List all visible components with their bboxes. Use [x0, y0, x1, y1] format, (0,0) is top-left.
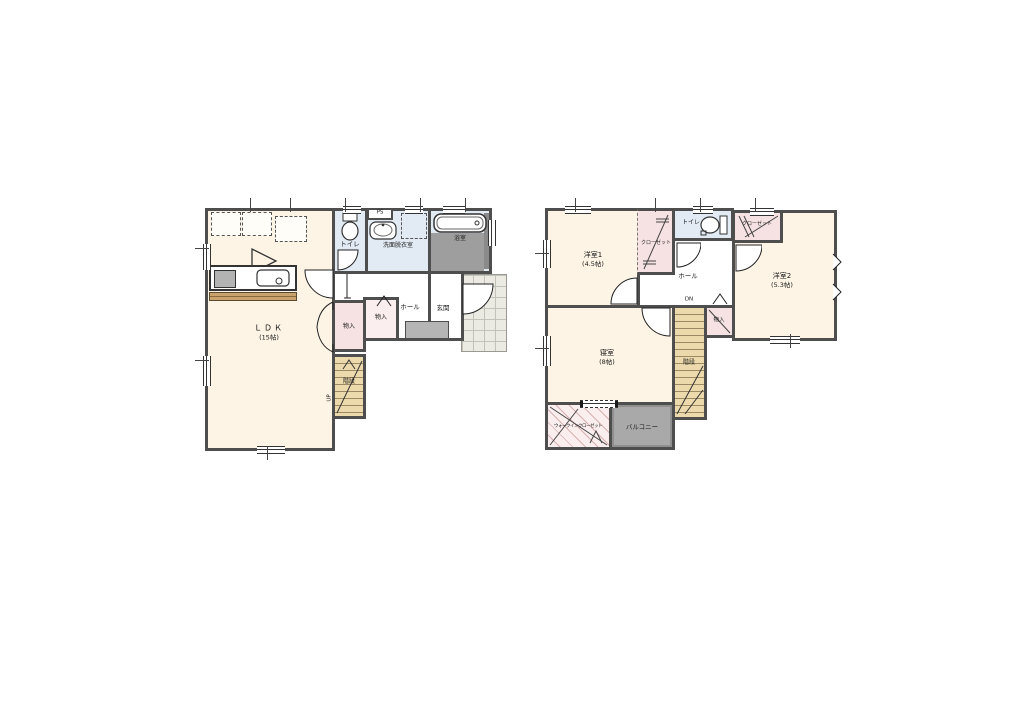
storage-2f-name: 物入 [713, 317, 724, 324]
room-label-western-2: 洋室2 (5.3帖) [771, 272, 793, 290]
stairs-up-label: UP [326, 394, 333, 401]
toilet-2f-name: トイレ [682, 219, 700, 227]
window-marker [488, 220, 496, 246]
kitchen-counter [209, 265, 297, 291]
ldk-size: (15帖) [254, 334, 284, 342]
bathroom-name: 浴室 [454, 235, 466, 243]
balcony-name: バルコニー [626, 423, 658, 431]
room-label-stairs-1f: 階段 [343, 378, 355, 386]
window-marker [257, 446, 285, 454]
washbasin-icon [369, 221, 397, 241]
stairs-dn-label: DN [685, 296, 693, 303]
room-label-hall-1f: ホール [400, 303, 420, 311]
dimension-tick [465, 198, 466, 212]
stairs-2f-name: 階段 [683, 359, 695, 367]
closet-2-name: クローゼット [742, 221, 772, 228]
ldk-name: ＬＤＫ [254, 324, 284, 334]
closet-1-name: クローゼット [641, 240, 671, 247]
bedroom-name: 寝室 [599, 349, 615, 358]
room-label-closet-1: クローゼット [641, 240, 671, 247]
ps-name: PS [377, 209, 384, 216]
stairs-1f [332, 354, 366, 419]
door-arc-entrance [461, 282, 495, 316]
western-2-name: 洋室2 [771, 272, 793, 281]
dimension-tick [655, 198, 656, 212]
casement-window-icon [832, 252, 842, 272]
counter-bar-wood [209, 292, 297, 301]
toilet-icon-2f [699, 213, 729, 237]
door-arc-western-2 [734, 243, 762, 273]
stairs-1f-name: 階段 [343, 378, 355, 386]
dimension-tick [267, 446, 268, 460]
sink-icon [256, 269, 290, 287]
dimension-tick [250, 198, 251, 212]
door-double-storage [315, 300, 335, 354]
hall-2f-name: ホール [678, 272, 698, 280]
window-marker [443, 206, 465, 214]
door-leaf-washroom [343, 272, 353, 300]
room-label-bedroom: 寝室 (8帖) [599, 349, 615, 367]
stairs-dn-text: DN [685, 296, 693, 303]
room-label-balcony: バルコニー [626, 423, 658, 431]
entrance-name: 玄関 [437, 304, 450, 312]
room-label-closet-2: クローゼット [742, 221, 772, 228]
room-label-bathroom: 浴室 [454, 235, 466, 243]
room-label-wic: ウォークインクローゼット [554, 424, 602, 430]
room-label-washroom: 洗面脱衣室 [383, 242, 413, 250]
stairs-up-text: UP [326, 394, 333, 401]
kitchen-cabinet-dashed [242, 212, 272, 236]
room-label-ldk: ＬＤＫ (15帖) [254, 324, 284, 343]
room-label-western-1: 洋室1 (4.5帖) [582, 251, 604, 269]
folding-door-icon [375, 294, 393, 308]
window-marker [565, 206, 591, 214]
washroom-name: 洗面脱衣室 [383, 242, 413, 250]
dimension-tick [195, 248, 209, 249]
western-1-size: (4.5帖) [582, 260, 604, 268]
folding-door-icon [711, 292, 729, 306]
dimension-tick [420, 198, 421, 212]
room-label-storage-2f: 物入 [713, 317, 724, 324]
dimension-tick [755, 198, 756, 212]
wic-name: ウォークインクローゼット [554, 424, 602, 430]
dimension-tick [535, 348, 549, 349]
room-label-storage-2: 物入 [375, 314, 387, 322]
floorplan-canvas: ＬＤＫ (15帖) トイレ PS 洗面脱衣室 浴室 ホール 玄関 物入 物入 階… [0, 0, 1024, 724]
stairs-1f-lines [335, 357, 363, 416]
storage-2-name: 物入 [375, 314, 387, 322]
kitchen-cabinet-dashed [275, 216, 307, 242]
room-label-entrance: 玄関 [437, 304, 450, 312]
door-arc-hall-ldk [304, 269, 335, 300]
door-arc-western-1 [609, 276, 639, 306]
kitchen-cabinet-dashed [211, 212, 241, 236]
room-label-toilet-1f: トイレ [340, 240, 360, 248]
window-marker [580, 400, 618, 408]
room-label-toilet-2f: トイレ [682, 219, 700, 227]
toilet-1f-name: トイレ [340, 240, 360, 248]
room-label-ps: PS [377, 209, 384, 216]
window-marker [543, 336, 551, 366]
door-arc-toilet-1f [336, 248, 360, 272]
dimension-tick [195, 360, 209, 361]
floor2-plan: 洋室1 (4.5帖) クローゼット トイレ クローゼット 洋室2 (5.3帖) … [545, 208, 837, 453]
shoe-cabinet [405, 321, 449, 339]
toilet-icon-1f [338, 212, 362, 242]
storage-1-name: 物入 [343, 323, 355, 331]
washing-machine-area [401, 213, 427, 239]
casement-window-icon [832, 282, 842, 302]
bathtub-icon [433, 213, 487, 233]
dimension-tick [575, 198, 576, 212]
hall-1f-name: ホール [400, 303, 420, 311]
stove-icon [214, 270, 236, 288]
dimension-tick [790, 334, 791, 348]
window-marker [750, 208, 774, 216]
western-2-size: (5.3帖) [771, 281, 793, 289]
dimension-tick [345, 198, 346, 212]
window-marker [543, 240, 551, 268]
window-marker [770, 336, 800, 344]
door-arc-toilet-2f [675, 241, 701, 269]
door-arc-bedroom [640, 306, 672, 338]
dimension-tick [700, 198, 701, 212]
dimension-tick [290, 198, 291, 212]
western-1-name: 洋室1 [582, 251, 604, 260]
dimension-tick [535, 253, 549, 254]
room-label-storage-1: 物入 [343, 323, 355, 331]
room-label-hall-2f: ホール [678, 272, 698, 280]
room-label-stairs-2f: 階段 [683, 359, 695, 367]
window-marker [693, 206, 713, 214]
floor1-plan: ＬＤＫ (15帖) トイレ PS 洗面脱衣室 浴室 ホール 玄関 物入 物入 階… [205, 208, 505, 458]
bedroom-size: (8帖) [599, 358, 615, 366]
